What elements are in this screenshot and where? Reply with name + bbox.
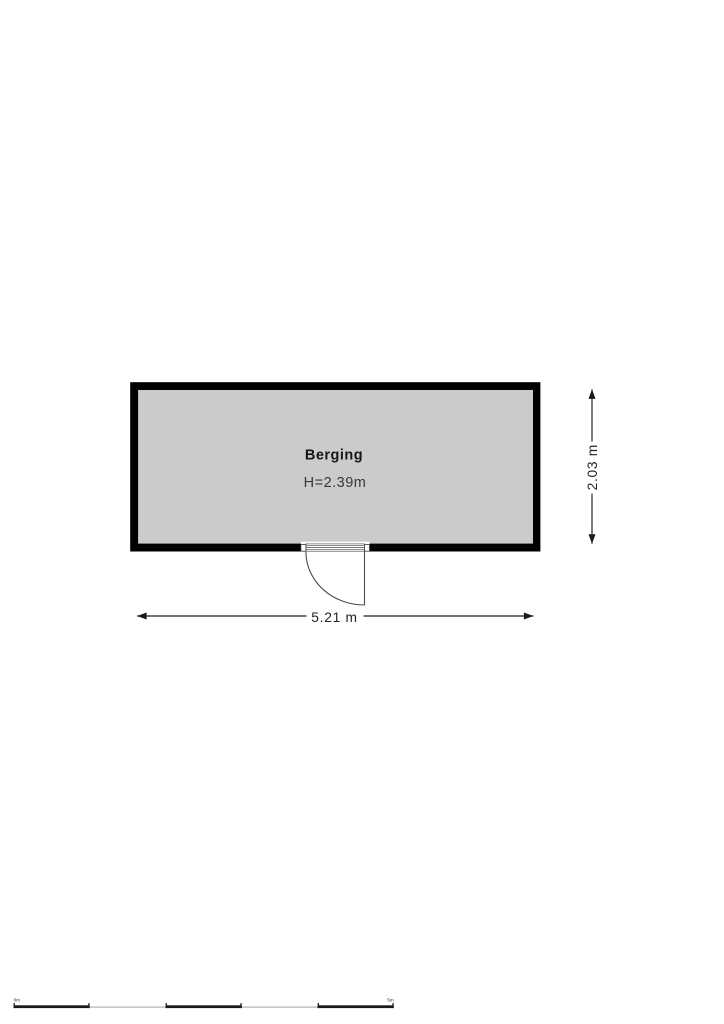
svg-text:0m: 0m xyxy=(14,998,21,1003)
svg-text:H=2.39m: H=2.39m xyxy=(304,475,367,491)
svg-text:5m: 5m xyxy=(387,998,394,1003)
svg-text:5.21 m: 5.21 m xyxy=(311,610,357,625)
svg-text:Berging: Berging xyxy=(305,448,363,464)
svg-text:2.03 m: 2.03 m xyxy=(585,444,600,490)
